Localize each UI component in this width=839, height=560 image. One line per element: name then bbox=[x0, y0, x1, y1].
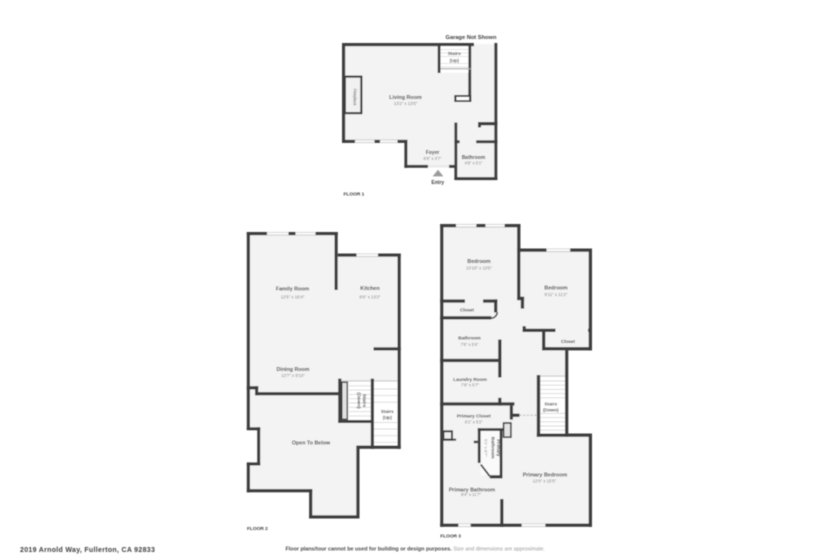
svg-text:Stairs: Stairs bbox=[544, 401, 557, 406]
svg-text:(Down): (Down) bbox=[543, 407, 559, 412]
svg-text:Primary: Primary bbox=[496, 439, 501, 457]
svg-text:Dining Room: Dining Room bbox=[277, 367, 310, 373]
svg-text:Family Room: Family Room bbox=[276, 286, 310, 292]
svg-text:(Up): (Up) bbox=[450, 58, 460, 63]
svg-text:FLOOR 2: FLOOR 2 bbox=[247, 526, 268, 532]
svg-text:2019 Arnold Way, Fullerton, CA: 2019 Arnold Way, Fullerton, CA 92833 bbox=[20, 547, 155, 554]
svg-text:5'1" x 8'7": 5'1" x 8'7" bbox=[484, 439, 489, 457]
svg-text:12'7" x 9'10": 12'7" x 9'10" bbox=[281, 373, 305, 378]
svg-text:Bathroom: Bathroom bbox=[458, 335, 481, 341]
svg-text:Open To Below: Open To Below bbox=[292, 440, 331, 446]
svg-text:7'8" x 5'7": 7'8" x 5'7" bbox=[461, 383, 479, 388]
svg-text:FLOOR 1: FLOOR 1 bbox=[344, 191, 365, 197]
svg-text:Stairs: Stairs bbox=[361, 394, 367, 408]
svg-text:7'6" x 5'6": 7'6" x 5'6" bbox=[461, 342, 479, 347]
svg-text:Living Room: Living Room bbox=[389, 95, 422, 101]
svg-text:4'8" x 5'1": 4'8" x 5'1" bbox=[465, 161, 483, 166]
svg-text:13'2" x 13'5": 13'2" x 13'5" bbox=[394, 101, 418, 106]
svg-text:Entry: Entry bbox=[431, 180, 444, 186]
svg-text:Fireplace: Fireplace bbox=[352, 89, 357, 107]
svg-text:Garage Not Shown: Garage Not Shown bbox=[446, 35, 497, 41]
svg-text:9'11" x 11'2": 9'11" x 11'2" bbox=[545, 292, 568, 297]
svg-text:10'10" x 10'5": 10'10" x 10'5" bbox=[466, 265, 492, 270]
svg-text:Closet: Closet bbox=[561, 339, 576, 344]
svg-text:8'4" x 11'7": 8'4" x 11'7" bbox=[461, 492, 481, 497]
svg-text:Closet: Closet bbox=[460, 307, 475, 312]
svg-text:Bedroom: Bedroom bbox=[467, 259, 491, 265]
svg-text:Bedroom: Bedroom bbox=[544, 286, 568, 292]
svg-text:8'6" x 13'2": 8'6" x 13'2" bbox=[359, 294, 381, 299]
svg-text:Kitchen: Kitchen bbox=[360, 286, 379, 292]
svg-text:12'5" x 16'4": 12'5" x 16'4" bbox=[281, 295, 305, 300]
svg-text:6'1" x 5'2": 6'1" x 5'2" bbox=[465, 420, 483, 425]
svg-text:12'6" x 15'5": 12'6" x 15'5" bbox=[533, 478, 557, 483]
svg-text:6'6" x 3'7": 6'6" x 3'7" bbox=[424, 156, 442, 161]
svg-text:(Up): (Up) bbox=[383, 415, 393, 420]
svg-text:Stairs: Stairs bbox=[448, 51, 461, 56]
svg-text:Stairs: Stairs bbox=[381, 409, 394, 414]
svg-text:Floor plans/tour cannot be use: Floor plans/tour cannot be used for buil… bbox=[286, 547, 545, 553]
svg-text:FLOOR 3: FLOOR 3 bbox=[440, 534, 461, 540]
svg-text:Bathroom: Bathroom bbox=[491, 437, 496, 459]
svg-text:(Down): (Down) bbox=[356, 392, 362, 409]
svg-text:Primary Closet: Primary Closet bbox=[457, 413, 491, 419]
